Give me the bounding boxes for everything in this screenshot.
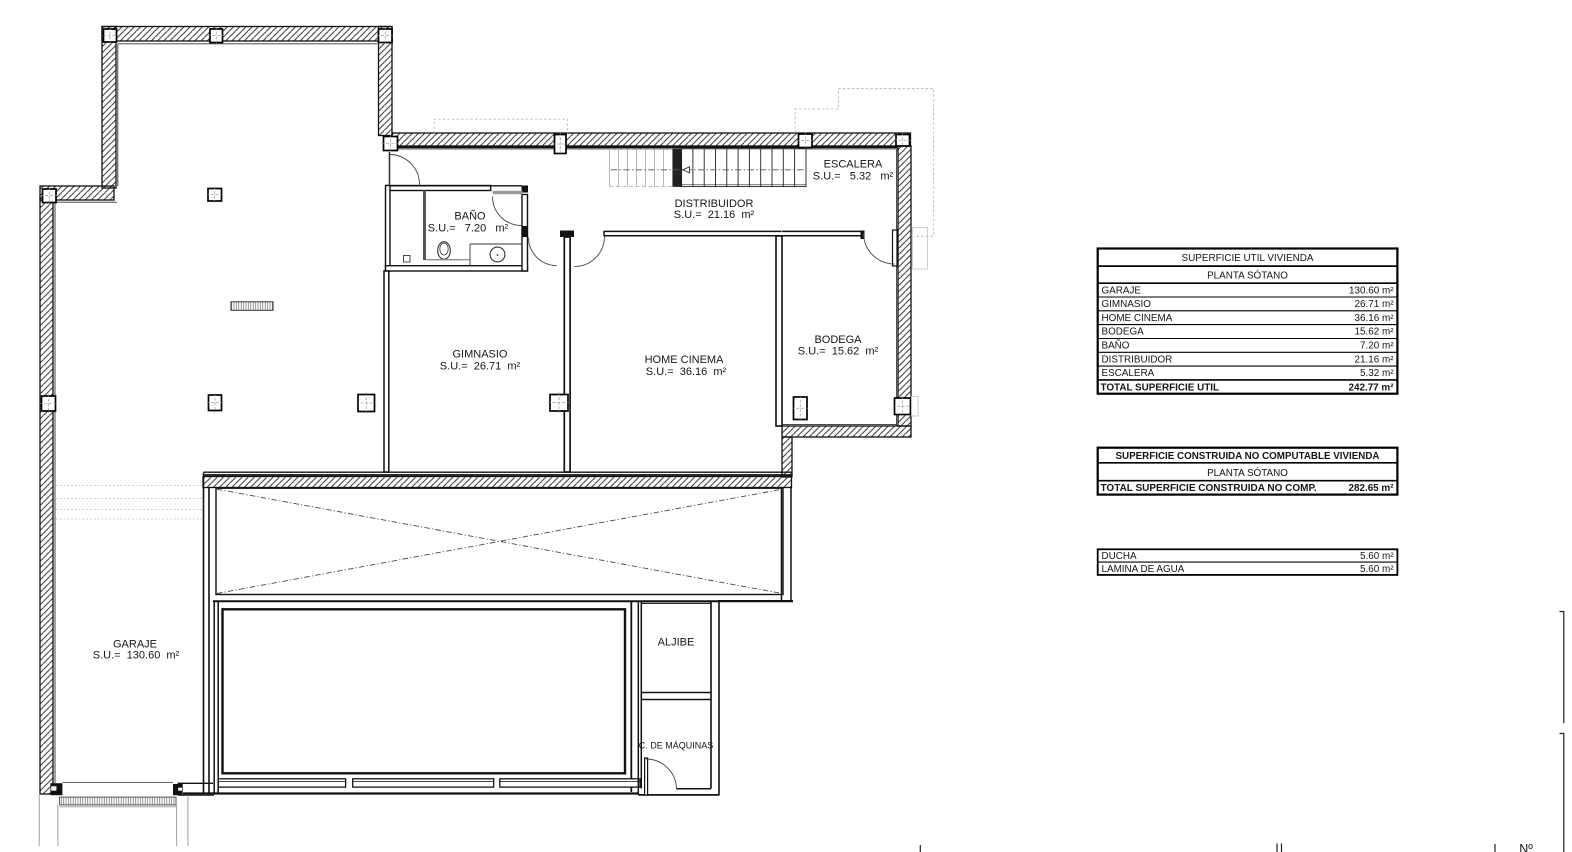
svg-text:TOTAL SUPERFICIE CONSTRUIDA NO: TOTAL SUPERFICIE CONSTRUIDA NO COMP. [1101,483,1317,494]
svg-text:5.32 m²: 5.32 m² [1360,368,1394,379]
svg-text:DUCHA: DUCHA [1102,551,1138,562]
svg-text:GIMNASIO: GIMNASIO [452,349,507,361]
svg-text:SUPERFICIE UTIL VIVIENDA: SUPERFICIE UTIL VIVIENDA [1182,253,1314,264]
svg-text:S.U.= 15.62 m²: S.U.= 15.62 m² [798,346,879,358]
svg-text:BAÑO: BAÑO [454,210,486,223]
svg-text:S.U.= 130.60 m²: S.U.= 130.60 m² [93,650,180,662]
svg-text:130.60 m²: 130.60 m² [1349,285,1394,296]
svg-text:HOME CINEMA: HOME CINEMA [1102,313,1173,324]
svg-text:C. DE MÁQUINAS: C. DE MÁQUINAS [639,741,714,751]
svg-text:5.60 m²: 5.60 m² [1360,551,1394,562]
svg-text:SUPERFICIE CONSTRUIDA NO COMPU: SUPERFICIE CONSTRUIDA NO COMPUTABLE VIVI… [1116,451,1380,462]
svg-text:GIMNASIO: GIMNASIO [1102,299,1152,310]
svg-text:242.77 m²: 242.77 m² [1348,383,1394,394]
svg-text:26.71 m²: 26.71 m² [1355,299,1395,310]
svg-text:S.U.= 36.16 m²: S.U.= 36.16 m² [646,366,727,378]
svg-text:PLANTA SÓTANO: PLANTA SÓTANO [1207,270,1288,281]
svg-text:36.16 m²: 36.16 m² [1355,313,1395,324]
svg-text:282.65 m²: 282.65 m² [1348,483,1394,494]
svg-text:7.20 m²: 7.20 m² [1360,341,1394,352]
svg-text:S.U.= 7.20 m²: S.U.= 7.20 m² [428,223,509,235]
svg-text:ALJIBE: ALJIBE [658,637,695,649]
svg-text:DISTRIBUIDOR: DISTRIBUIDOR [1102,354,1173,365]
svg-text:ESCALERA: ESCALERA [1102,368,1155,379]
svg-text:TOTAL SUPERFICIE UTIL: TOTAL SUPERFICIE UTIL [1101,383,1220,394]
svg-text:BODEGA: BODEGA [814,334,862,346]
svg-text:15.62 m²: 15.62 m² [1355,327,1395,338]
svg-text:Nº: Nº [1519,842,1533,852]
svg-text:GARAJE: GARAJE [1102,285,1142,296]
svg-text:S.U.= 5.32 m²: S.U.= 5.32 m² [813,171,894,183]
svg-text:HOME CINEMA: HOME CINEMA [645,354,725,366]
svg-text:BAÑO: BAÑO [1102,341,1130,352]
svg-text:LAMINA DE AGUA: LAMINA DE AGUA [1102,564,1185,575]
svg-text:BODEGA: BODEGA [1102,327,1145,338]
svg-text:S.U.= 21.16 m²: S.U.= 21.16 m² [674,209,755,221]
svg-text:PLANTA SÓTANO: PLANTA SÓTANO [1207,468,1288,479]
svg-text:S.U.= 26.71 m²: S.U.= 26.71 m² [440,361,521,373]
svg-text:5.60 m²: 5.60 m² [1360,564,1394,575]
svg-text:21.16 m²: 21.16 m² [1355,354,1395,365]
svg-text:ESCALERA: ESCALERA [824,159,883,171]
